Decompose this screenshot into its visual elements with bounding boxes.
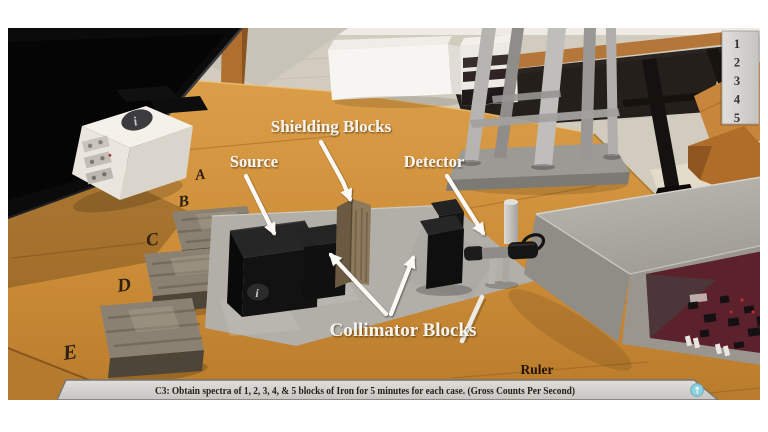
- task-text: C3: Obtain spectra of 1, 2, 3, 4, & 5 bl…: [155, 385, 575, 397]
- shelf-number-2: 2: [734, 56, 740, 70]
- row-letter-a: A: [193, 167, 206, 184]
- iron-block-row-e[interactable]: [100, 298, 209, 386]
- task-status-bar: C3: Obtain spectra of 1, 2, 3, 4, & 5 bl…: [57, 380, 718, 400]
- detector-label: Detector: [404, 152, 464, 171]
- up-arrow-icon: ↑: [693, 387, 701, 397]
- simulator-window: i A B C D E: [0, 0, 768, 432]
- shielding-block[interactable]: [335, 199, 371, 288]
- shelf-number-panel: 1 2 3 4 5: [720, 31, 759, 126]
- shelf-number-1: 1: [734, 37, 740, 51]
- shelf-number-3: 3: [734, 74, 740, 88]
- shielding-blocks-label: Shielding Blocks: [271, 117, 392, 136]
- collimator-blocks-label: Collimator Blocks: [330, 320, 477, 341]
- detector-stand-leg: [502, 257, 510, 282]
- shelf-number-4: 4: [734, 93, 741, 107]
- expand-task-icon[interactable]: ↑: [691, 384, 704, 397]
- source-label: Source: [230, 152, 278, 171]
- detector-post-top: [504, 199, 518, 205]
- ruler-label: Ruler: [521, 362, 554, 377]
- detector-end-cap: [464, 246, 485, 261]
- shelf-number-5: 5: [734, 111, 740, 125]
- lab-scene-3d: i A B C D E: [0, 0, 768, 432]
- detector-body: [482, 246, 513, 259]
- mat-info-icon[interactable]: i: [247, 284, 269, 301]
- detector-post: [504, 202, 518, 244]
